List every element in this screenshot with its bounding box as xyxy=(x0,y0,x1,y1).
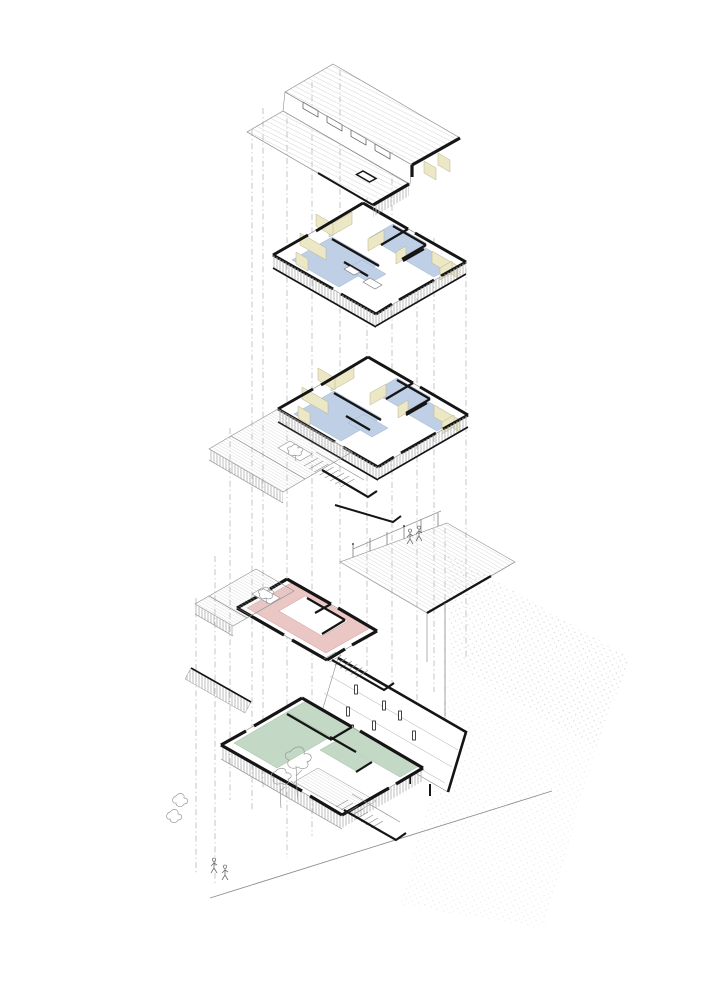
yellow-wall-under-roof xyxy=(424,161,436,180)
bush-sketch xyxy=(173,793,188,806)
drawing-canvas xyxy=(0,0,707,1000)
column xyxy=(355,685,358,694)
person-figure xyxy=(222,865,228,880)
level-upper-floor xyxy=(273,203,466,327)
column xyxy=(383,701,386,710)
column xyxy=(399,711,402,720)
yellow-wall-under-roof xyxy=(438,153,450,172)
person-figure xyxy=(211,858,217,873)
level-roof xyxy=(247,64,460,217)
column xyxy=(373,721,376,730)
post-cap xyxy=(403,525,405,527)
lower-balcony-strip xyxy=(185,668,251,713)
ground-side-deck xyxy=(185,569,294,713)
column xyxy=(347,707,350,716)
bush-sketches xyxy=(167,793,188,822)
column xyxy=(413,731,416,740)
architectural-exploded-axonometric xyxy=(0,0,707,1000)
level-main-floor xyxy=(209,357,468,522)
scale-figures xyxy=(211,858,228,880)
ramp-edge xyxy=(335,505,401,522)
post-cap xyxy=(352,543,354,545)
stair-rail-cut xyxy=(344,810,406,840)
bush-sketch xyxy=(167,809,182,822)
